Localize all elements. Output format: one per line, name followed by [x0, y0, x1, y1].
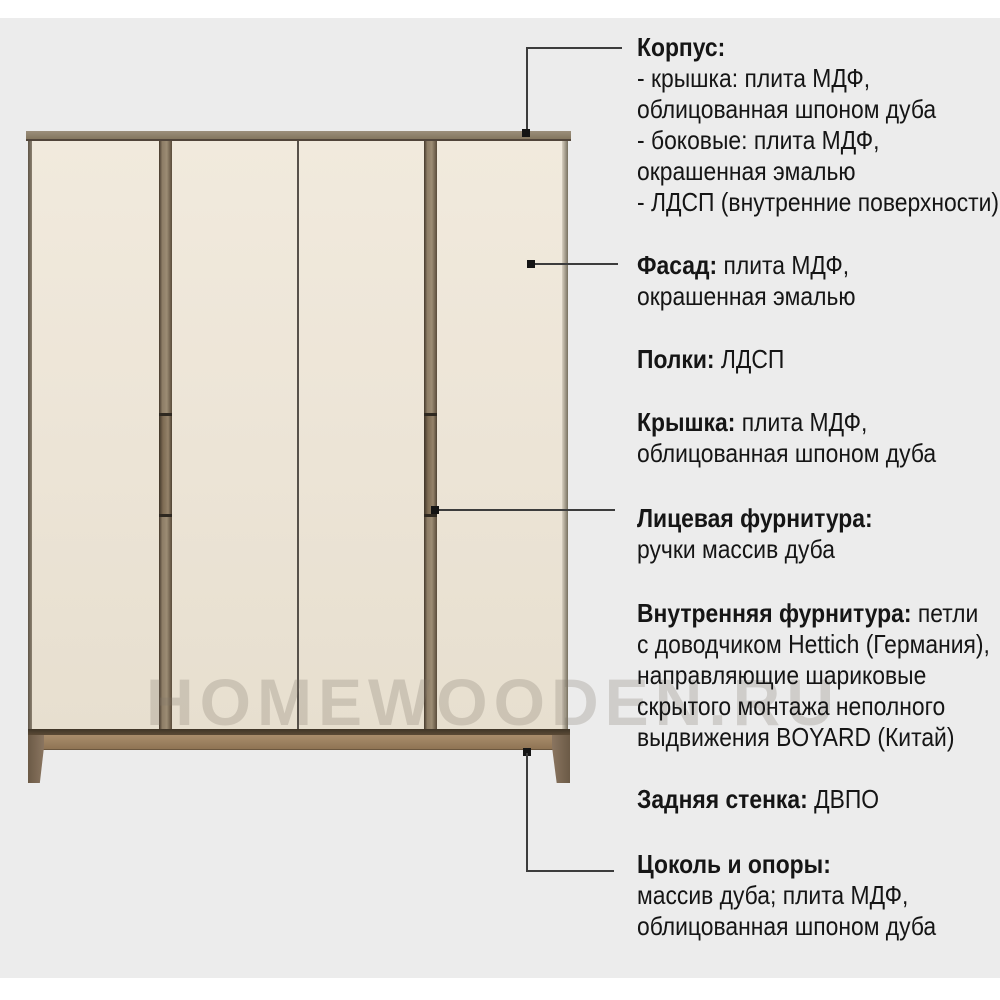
annotation-line: Фасад: плита МДФ, [637, 250, 856, 281]
oak-handle-left [159, 413, 172, 517]
wardrobe-left-side-edge [28, 141, 32, 729]
annotation-line: ручки массив дуба [637, 534, 873, 565]
annotation-line: - боковые: плита МДФ, [637, 125, 999, 156]
annotation-line: облицованная шпоном дуба [637, 438, 936, 469]
annotation-line: выдвижения BOYARD (Китай) [637, 722, 990, 753]
annotation-line: массив дуба; плита МДФ, [637, 880, 936, 911]
annotation-kryshka: Крышка: плита МДФ,облицованная шпоном ду… [637, 407, 936, 469]
annotation-line: - ЛДСП (внутренние поверхности) [637, 187, 999, 218]
connector-cokol-horizontal [526, 870, 614, 872]
annotation-zadnyaya-stenka: Задняя стенка: ДВПО [637, 784, 879, 815]
annotation-line: Полки: ЛДСП [637, 344, 784, 375]
annotation-line: - крышка: плита МДФ, [637, 63, 999, 94]
annotation-korpus: Корпус:- крышка: плита МДФ,облицованная … [637, 32, 999, 218]
connector-fasad-dot [527, 260, 535, 268]
annotation-fasad: Фасад: плита МДФ,окрашенная эмалью [637, 250, 856, 312]
annotation-line: Внутренняя фурнитура: петли [637, 598, 990, 629]
annotation-line: облицованная шпоном дуба [637, 911, 936, 942]
annotation-line: окрашенная эмалью [637, 281, 856, 312]
annotation-line: скрытого монтажа неполного [637, 691, 990, 722]
annotation-line: окрашенная эмалью [637, 156, 999, 187]
connector-korpus-horizontal [527, 47, 622, 49]
center-door-gap-line [297, 141, 299, 729]
annotation-line: Цоколь и опоры: [637, 849, 936, 880]
oak-handle-right [424, 413, 437, 517]
annotation-line: с доводчиком Hettich (Германия), [637, 629, 990, 660]
wardrobe-right-side-edge [562, 141, 568, 729]
annotation-line: Корпус: [637, 32, 999, 63]
annotation-polki: Полки: ЛДСП [637, 344, 784, 375]
annotation-line: облицованная шпоном дуба [637, 94, 999, 125]
annotation-line: Задняя стенка: ДВПО [637, 784, 879, 815]
wardrobe-top-panel [26, 131, 571, 141]
connector-fasad-horizontal [531, 263, 618, 265]
annotation-licevaya-furnitura: Лицевая фурнитура:ручки массив дуба [637, 503, 873, 565]
connector-korpus-dot [522, 129, 530, 137]
annotation-cokol-i-opory: Цоколь и опоры:массив дуба; плита МДФ,об… [637, 849, 936, 942]
connector-furnitura-dot [431, 506, 439, 514]
connector-cokol-vertical [526, 753, 528, 872]
annotation-line: направляющие шариковые [637, 660, 990, 691]
connector-korpus-vertical [526, 47, 528, 133]
annotation-line: Лицевая фурнитура: [637, 503, 873, 534]
annotation-line: Крышка: плита МДФ, [637, 407, 936, 438]
connector-furnitura-horizontal [435, 509, 615, 511]
annotation-vnutrennyaya-furnitura: Внутренняя фурнитура: петлис доводчиком … [637, 598, 990, 753]
